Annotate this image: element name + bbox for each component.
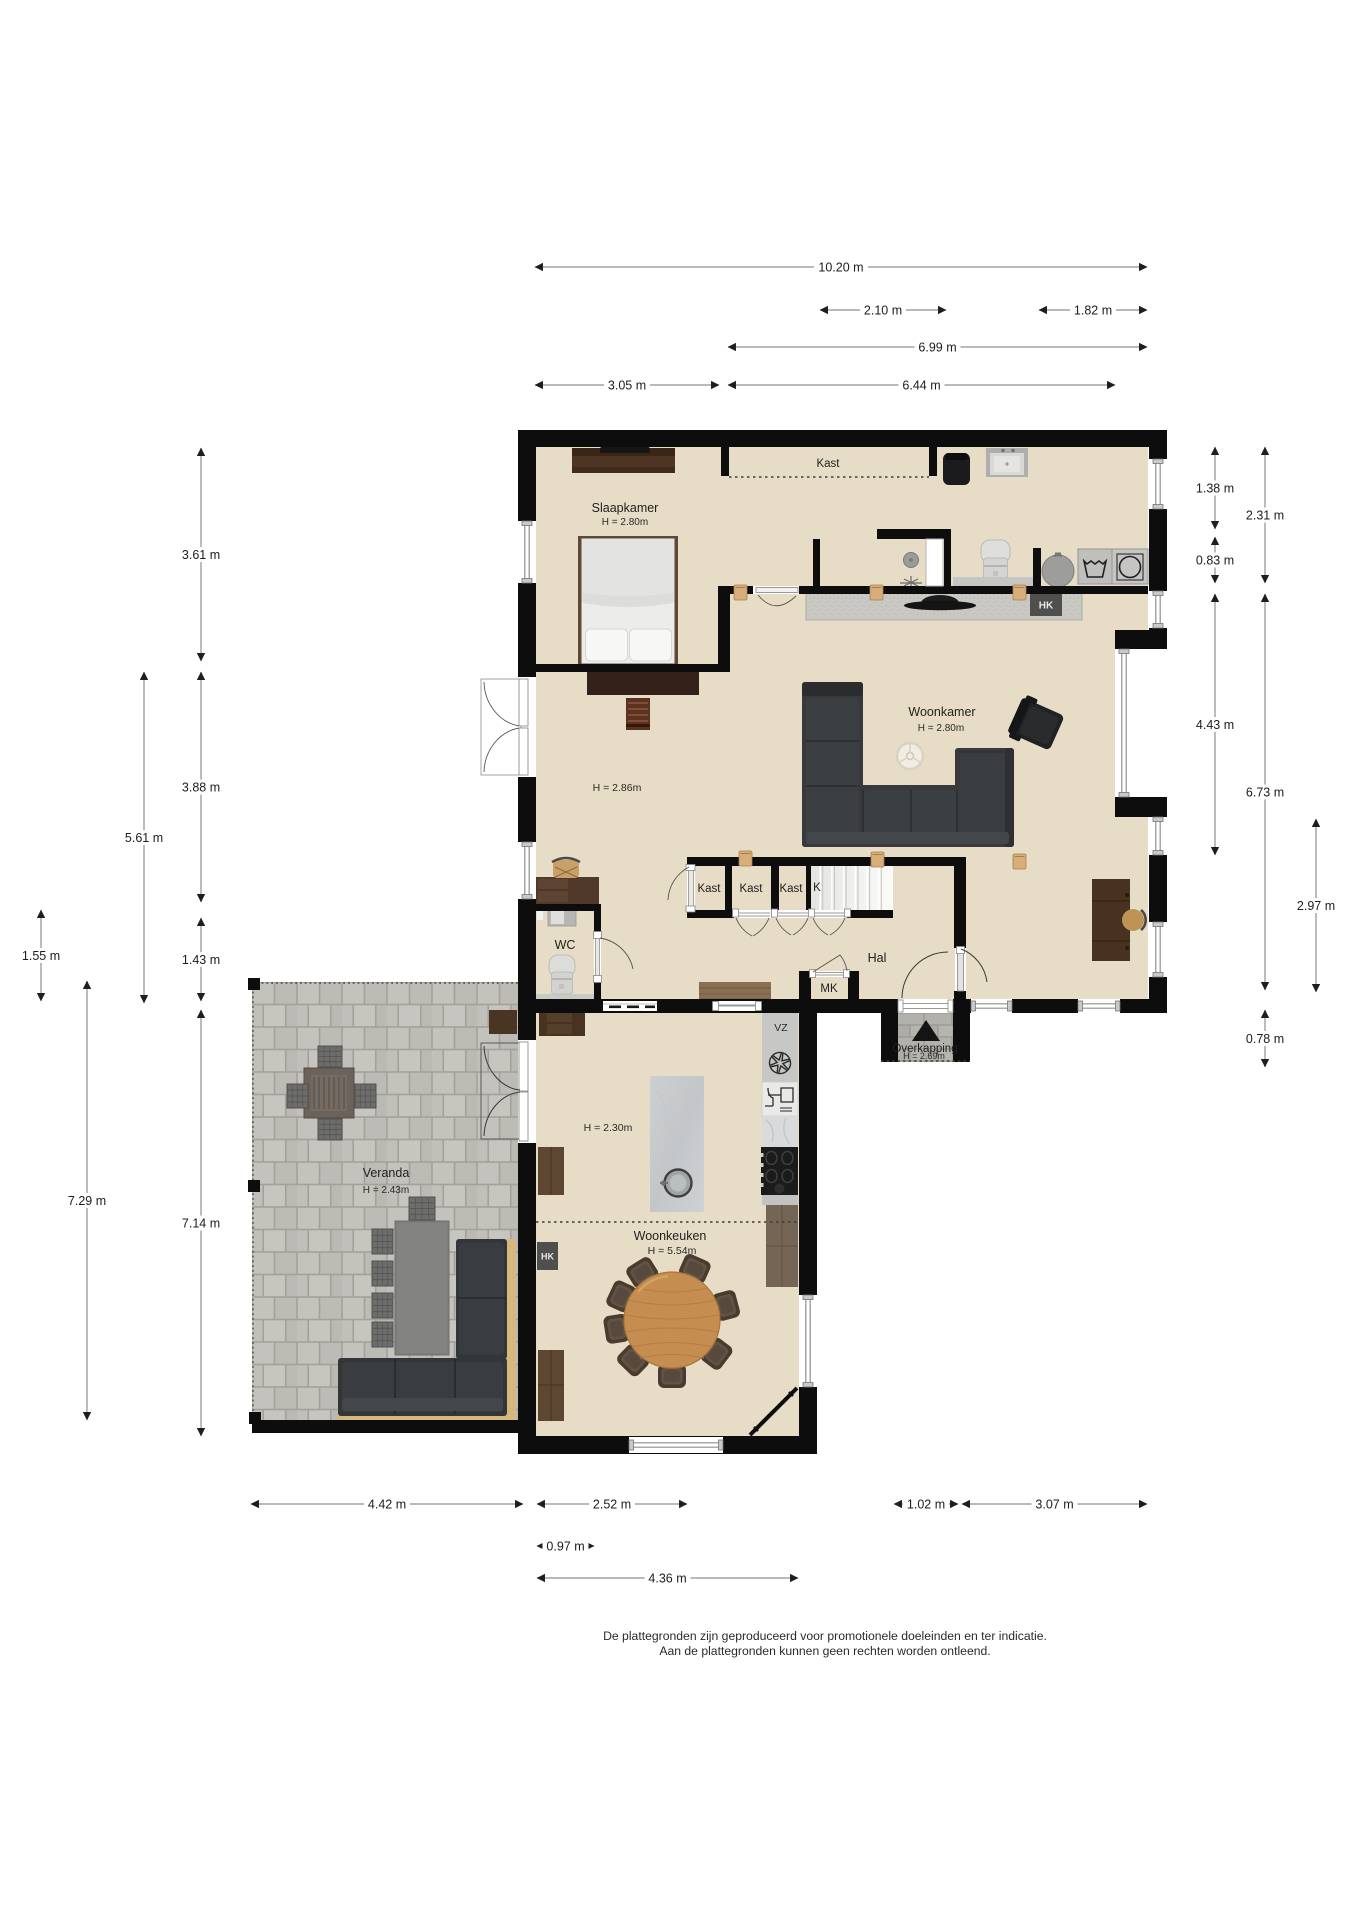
- svg-text:2.97 m: 2.97 m: [1297, 899, 1335, 913]
- svg-text:5.61 m: 5.61 m: [125, 831, 163, 845]
- svg-text:4.43 m: 4.43 m: [1196, 718, 1234, 732]
- svg-text:MK: MK: [820, 983, 838, 995]
- svg-text:WC: WC: [555, 938, 576, 952]
- svg-text:2.10 m: 2.10 m: [864, 303, 902, 317]
- svg-text:6.73 m: 6.73 m: [1246, 785, 1284, 799]
- svg-text:1.82 m: 1.82 m: [1074, 303, 1112, 317]
- svg-text:H = 5.54m: H = 5.54m: [648, 1245, 697, 1257]
- svg-text:HK: HK: [1039, 601, 1054, 612]
- svg-text:2.31 m: 2.31 m: [1246, 508, 1284, 522]
- svg-text:VZ: VZ: [774, 1022, 788, 1034]
- svg-text:0.97 m: 0.97 m: [546, 1539, 584, 1553]
- svg-text:H = 2.43m: H = 2.43m: [363, 1185, 409, 1196]
- svg-text:Kast: Kast: [697, 883, 721, 895]
- svg-text:De plattegronden zijn geproduc: De plattegronden zijn geproduceerd voor …: [603, 1629, 1047, 1643]
- svg-text:3.61 m: 3.61 m: [182, 548, 220, 562]
- svg-text:7.14 m: 7.14 m: [182, 1216, 220, 1230]
- svg-text:Woonkeuken: Woonkeuken: [634, 1229, 707, 1243]
- svg-text:H = 2.69m: H = 2.69m: [903, 1051, 945, 1061]
- svg-text:3.05 m: 3.05 m: [608, 378, 646, 392]
- svg-text:4.42 m: 4.42 m: [368, 1497, 406, 1511]
- svg-text:7.29 m: 7.29 m: [68, 1194, 106, 1208]
- svg-text:1.02 m: 1.02 m: [907, 1497, 945, 1511]
- svg-text:Kast: Kast: [739, 883, 763, 895]
- svg-text:1.43 m: 1.43 m: [182, 953, 220, 967]
- svg-text:Hal: Hal: [868, 951, 887, 965]
- svg-text:Aan de plattegronden kunnen ge: Aan de plattegronden kunnen geen rechten…: [659, 1644, 990, 1658]
- svg-text:3.07 m: 3.07 m: [1035, 1497, 1073, 1511]
- svg-text:6.99 m: 6.99 m: [918, 340, 956, 354]
- svg-text:H = 2.86m: H = 2.86m: [593, 782, 642, 794]
- svg-text:Veranda: Veranda: [363, 1166, 410, 1180]
- svg-text:Kast: Kast: [816, 458, 840, 470]
- svg-text:Slaapkamer: Slaapkamer: [592, 501, 659, 515]
- svg-text:Kast: Kast: [779, 883, 803, 895]
- svg-text:H = 2.30m: H = 2.30m: [584, 1122, 633, 1134]
- svg-text:H = 2.80m: H = 2.80m: [918, 723, 964, 734]
- svg-text:10.20 m: 10.20 m: [818, 260, 863, 274]
- svg-text:HK: HK: [541, 1252, 554, 1262]
- svg-text:1.55 m: 1.55 m: [22, 949, 60, 963]
- svg-text:0.78 m: 0.78 m: [1246, 1032, 1284, 1046]
- svg-text:0.83 m: 0.83 m: [1196, 553, 1234, 567]
- svg-text:1.38 m: 1.38 m: [1196, 481, 1234, 495]
- svg-text:6.44 m: 6.44 m: [902, 378, 940, 392]
- svg-text:3.88 m: 3.88 m: [182, 780, 220, 794]
- svg-text:2.52 m: 2.52 m: [593, 1497, 631, 1511]
- svg-text:4.36 m: 4.36 m: [648, 1571, 686, 1585]
- svg-text:K: K: [813, 882, 821, 894]
- svg-text:H = 2.80m: H = 2.80m: [602, 517, 648, 528]
- svg-text:Woonkamer: Woonkamer: [908, 705, 975, 719]
